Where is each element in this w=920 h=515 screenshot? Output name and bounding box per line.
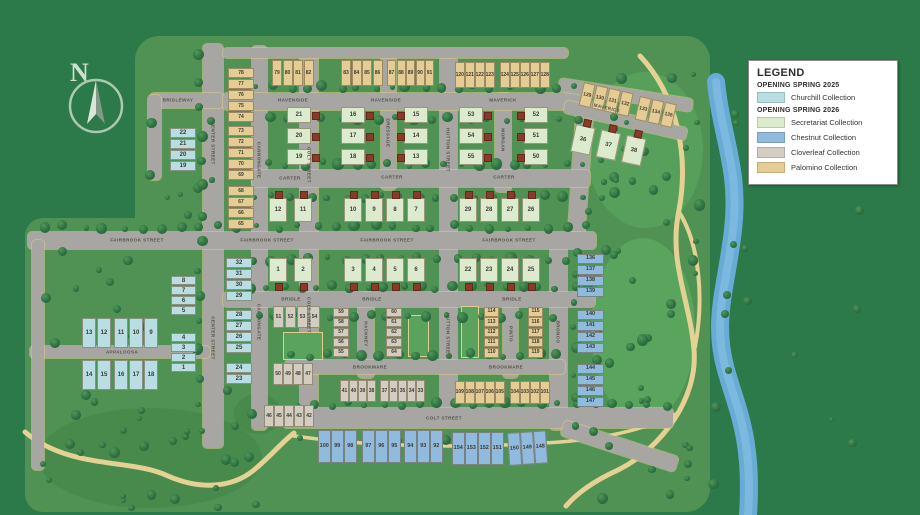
lot-number: 52 [288,315,294,320]
tree-icon [91,398,98,405]
lot-number: 31 [236,271,243,277]
lot-number: 115 [531,309,539,314]
lot-number: 101 [541,390,549,395]
lot: 2 [171,353,196,362]
street-label: FAIRBROOK STREET [360,238,413,243]
lot-number: 149 [523,445,533,451]
garage-square [583,119,592,128]
lot-number: 41 [342,389,348,394]
lot-number: 28 [486,207,493,213]
lot-number: 138 [586,278,595,284]
lot-number: 77 [238,82,244,87]
lot: 148 [533,430,548,464]
lot-number: 131 [608,98,617,105]
street-label: FAIRBROOK STREET [110,238,163,243]
legend-label: Churchill Collection [791,93,855,102]
garage-square [366,133,374,141]
lot-number: 12 [275,207,282,213]
tree-icon [694,199,705,210]
lot-number: 74 [238,115,244,120]
lot-number: 21 [296,112,303,118]
lot-number: 45 [276,414,282,419]
street-label: FAIRBROOK STREET [240,238,293,243]
tree-icon [551,349,561,359]
lot: 117 [528,328,543,338]
lot: 7 [171,286,196,295]
tree-icon [120,494,125,499]
lot: 3 [344,258,362,282]
tree-icon [421,311,432,322]
tree-icon [431,286,438,293]
lot: 142 [577,332,604,342]
tree-icon [106,278,114,286]
tree-icon [585,208,592,215]
lot: 1 [171,363,196,372]
lot: 89 [406,60,415,86]
lot-number: 58 [338,320,344,325]
tree-icon [605,358,615,368]
tree-icon [96,223,107,234]
lot-number: 37 [604,142,612,149]
garage-square [392,191,400,199]
tree-icon [374,86,380,92]
tree-icon [306,354,313,361]
lot-number: 6 [182,298,185,304]
lot-number: 127 [531,73,539,78]
tree-icon [723,291,731,299]
road [223,292,595,307]
tree-icon [610,251,618,259]
street-label: BRIDLEWAY [163,98,194,103]
lot-number: 49 [285,372,291,377]
lot: 35 [398,380,407,402]
tree-icon [505,226,511,232]
lot-number: 47 [305,372,311,377]
lot: 154 [452,432,465,465]
lot-number: 14 [413,133,420,139]
lot-number: 10 [350,207,357,213]
tree-icon [625,401,633,409]
lot: 37 [380,380,389,402]
lot: 16 [114,360,128,390]
lot-number: 121 [466,73,474,78]
legend-item: Palomino Collection [757,162,889,173]
tree-icon [708,479,719,490]
lot: 9 [144,318,158,348]
tree-icon [447,281,458,292]
lot: 24 [226,363,252,373]
lot: 17 [341,128,365,144]
lot-number: 92 [433,444,439,450]
lot: 9 [365,198,383,222]
tree-icon [316,80,327,91]
tree-icon [683,145,689,151]
lot-number: 64 [391,350,397,355]
lot: 73 [228,126,254,136]
lot: 119 [528,348,543,358]
lot: 137 [577,265,604,275]
lot: 68 [228,186,254,196]
lot: 54 [459,128,483,144]
legend-heading: OPENING SPRING 2025 [757,82,889,89]
tree-icon [667,73,677,83]
lot: 143 [577,343,604,353]
lot: 45 [274,405,284,427]
lot: 28 [226,310,252,320]
tree-icon [551,286,558,293]
tree-icon [178,192,183,197]
lot: 40 [349,380,358,402]
legend-title: LEGEND [757,67,889,79]
lot: 59 [333,308,349,317]
lot-number: 34 [409,389,415,394]
tree-icon [40,461,46,467]
site-plan-map: 2221201932313029282726252423876543211312… [0,0,920,515]
lot-number: 40 [351,389,357,394]
lot: 70 [228,159,254,169]
lot-number: 80 [285,71,291,76]
garage-square [608,124,617,133]
lot-number: 153 [467,446,476,452]
lot-number: 134 [651,109,660,116]
garage-square [528,191,536,199]
lot: 55 [459,149,483,165]
tree-icon [629,277,636,284]
lot-number: 125 [511,73,519,78]
lot-number: 7 [182,288,185,294]
lot: 12 [97,318,111,348]
lot-number: 51 [276,315,282,320]
lot: 8 [171,276,196,285]
lot: 147 [577,397,604,407]
lot-number: 11 [118,330,124,336]
lot-number: 139 [586,289,595,295]
tree-icon [139,225,148,234]
lot-number: 100 [320,444,329,450]
garage-square [366,112,374,120]
lot: 145 [577,375,604,385]
lot-number: 65 [238,222,244,227]
legend-label: Secretariat Collection [791,118,862,127]
lot-number: 81 [295,71,301,76]
garage-square [397,154,405,162]
lot-number: 43 [296,414,302,419]
lot-number: 106 [486,390,494,395]
lot-number: 95 [391,444,397,450]
lot-number: 27 [507,207,514,213]
lot: 76 [228,90,254,100]
tree-icon [230,458,239,467]
lot: 109 [455,381,465,404]
lot-number: 98 [347,444,353,450]
lot: 48 [293,363,303,385]
street-label: CARTER [381,175,403,180]
lot-number: 55 [468,154,475,160]
street-label: CARTER [493,175,515,180]
street-label: BRIDLE [362,297,382,302]
tree-icon [77,449,84,456]
lot: 11 [294,198,312,222]
lot-number: 114 [487,309,495,314]
lot: 99 [331,430,344,463]
lot-number: 13 [413,154,420,160]
lot: 41 [340,380,349,402]
lot: 25 [522,258,540,282]
legend-item: Chestnut Collection [757,132,889,143]
tree-icon [139,441,149,451]
lot-number: 123 [486,73,494,78]
lot: 14 [82,360,96,390]
lot: 24 [501,258,519,282]
tree-icon [214,504,221,511]
tree-icon [297,435,303,441]
lot-number: 96 [378,444,384,450]
legend-item: Secretariat Collection [757,117,889,128]
lot: 23 [226,374,252,384]
lot-number: 53 [300,315,306,320]
street-label: COLT STREET [307,297,312,333]
lot-number: 9 [372,207,375,213]
lot: 112 [484,328,499,338]
garage-square [413,191,421,199]
street-label: FAIRBROOK STREET [482,238,535,243]
lot: 25 [226,343,252,353]
street-label: COLT STREET [307,147,312,183]
lot: 95 [388,430,401,463]
lot: 103 [520,381,530,404]
lot: 33 [416,380,425,402]
tree-icon [194,268,201,275]
lot: 13 [404,149,428,165]
road [223,48,568,58]
lot: 18 [144,360,158,390]
lot-number: 143 [586,345,595,351]
lot-number: 111 [488,340,496,345]
lot-number: 52 [533,112,540,118]
lot-number: 35 [400,389,406,394]
lot-number: 120 [456,73,464,78]
lot: 36 [389,380,398,402]
garage-square [397,112,405,120]
lot-number: 60 [391,310,397,315]
lot: 88 [397,60,406,86]
tree-icon [466,225,473,232]
lot-number: 122 [476,73,484,78]
tree-icon [128,505,134,511]
tree-icon [177,222,187,232]
lot: 52 [285,306,296,328]
lot-number: 36 [579,136,587,143]
lot-number: 50 [533,154,540,160]
lot-number: 151 [493,446,502,452]
garage-square [507,283,515,291]
lot: 15 [97,360,111,390]
tree-icon [313,285,319,291]
lot: 60 [386,308,402,317]
garage-square [371,283,379,291]
lot: 82 [304,60,314,86]
tree-icon [427,350,438,361]
lot: 139 [577,287,604,297]
lot: 57 [333,328,349,337]
garage-square [275,283,283,291]
tree-icon [361,403,366,408]
lot: 23 [480,258,498,282]
lot: 124 [500,62,510,88]
lot: 4 [365,258,383,282]
lot-number: 136 [586,256,595,262]
lot: 116 [528,317,543,327]
lot-number: 36 [391,389,397,394]
lot-number: 3 [351,267,354,273]
lot-number: 144 [586,366,595,372]
tree-icon [485,224,494,233]
lot-number: 152 [480,446,489,452]
lot: 52 [524,107,548,123]
tree-icon [165,195,170,200]
tree-icon [545,257,552,264]
lot-number: 145 [586,377,595,383]
street-label: HACKNEY [364,321,369,347]
tree-icon [315,222,323,230]
tree-icon [571,83,577,89]
lot-number: 140 [586,312,595,318]
street-label: PINTO [509,326,514,342]
lot-number: 4 [372,267,375,273]
tree-icon [437,83,447,93]
tree-icon [433,255,441,263]
tree-icon [405,313,411,319]
lot: 6 [407,258,425,282]
lot-number: 90 [417,71,423,76]
lot-number: 88 [398,71,404,76]
tree-icon [637,334,648,345]
lot-number: 32 [236,260,243,266]
garage-square [517,112,525,120]
lot: 72 [228,137,254,147]
tree-icon [209,177,214,182]
lot-number: 4 [182,335,185,341]
lot-number: 85 [364,71,370,76]
lot-number: 28 [236,312,243,318]
lot: 51 [524,128,548,144]
lot-number: 25 [236,345,243,351]
tree-icon [195,402,200,407]
tree-icon [491,158,502,169]
legend-label: Palomino Collection [791,163,857,172]
tree-icon [194,78,203,87]
lot-number: 5 [182,308,185,314]
garage-square [528,283,536,291]
lot-number: 128 [541,73,549,78]
tree-icon [197,236,207,246]
tree-icon [244,452,254,462]
garage-square [486,283,494,291]
lot: 13 [82,318,96,348]
lot-number: 16 [118,372,125,378]
tree-icon [571,299,578,306]
tree-icon [829,417,834,422]
lot-number: 10 [133,330,140,336]
legend-item: Cloverleaf Collection [757,147,889,158]
lot-number: 59 [338,310,344,315]
tree-icon [666,490,674,498]
lot: 32 [226,258,252,268]
lot: 16 [341,107,365,123]
lot: 79 [272,60,282,86]
tree-icon [624,120,629,125]
lot-number: 50 [275,372,281,377]
garage-square [413,283,421,291]
lot: 93 [417,430,430,463]
tree-icon [157,224,167,234]
lot-number: 129 [583,92,592,99]
lot-number: 130 [595,95,604,102]
lot-number: 18 [148,372,155,378]
lot-number: 13 [86,330,93,336]
lot-number: 94 [407,444,413,450]
street-label: MORGAN [501,128,506,151]
lot-number: 69 [238,173,244,178]
lot: 63 [386,338,402,347]
lot: 62 [386,328,402,337]
lot: 11 [114,318,128,348]
tree-icon [648,466,655,473]
lot-number: 17 [133,372,140,378]
lot: 127 [530,62,540,88]
tree-icon [398,402,406,410]
lot-number: 56 [338,340,344,345]
lot-number: 30 [236,282,243,288]
lot: 94 [404,430,417,463]
lot: 27 [501,198,519,222]
lot-number: 38 [369,389,375,394]
tree-icon [46,477,52,483]
tree-icon [693,239,698,244]
lot: 12 [269,198,287,222]
lot: 113 [484,317,499,327]
lot-number: 11 [300,207,306,213]
lot: 122 [475,62,485,88]
lot: 47 [303,363,313,385]
street-label: BROOKMARE [353,365,387,370]
garage-square [634,129,643,138]
lot-number: 14 [86,372,93,378]
lot-number: 46 [266,414,272,419]
lot: 46 [264,405,274,427]
lot-number: 22 [465,267,472,273]
lot: 125 [510,62,520,88]
tree-icon [442,112,452,122]
lot: 84 [352,60,362,86]
street-label: COLT STREET [426,416,462,421]
lot-number: 44 [286,414,292,419]
lot: 151 [491,432,504,465]
tree-icon [431,397,442,408]
tree-icon [684,476,689,481]
tree-icon [607,399,617,409]
lot-number: 12 [101,330,108,336]
lot: 42 [304,405,314,427]
lot-number: 78 [238,71,244,76]
lot-number: 107 [476,390,484,395]
garage-square [397,133,405,141]
garage-square [465,283,473,291]
lot: 31 [226,269,252,279]
lot: 4 [171,333,196,342]
legend-color-swatch [757,117,785,128]
lot-number: 124 [501,73,509,78]
